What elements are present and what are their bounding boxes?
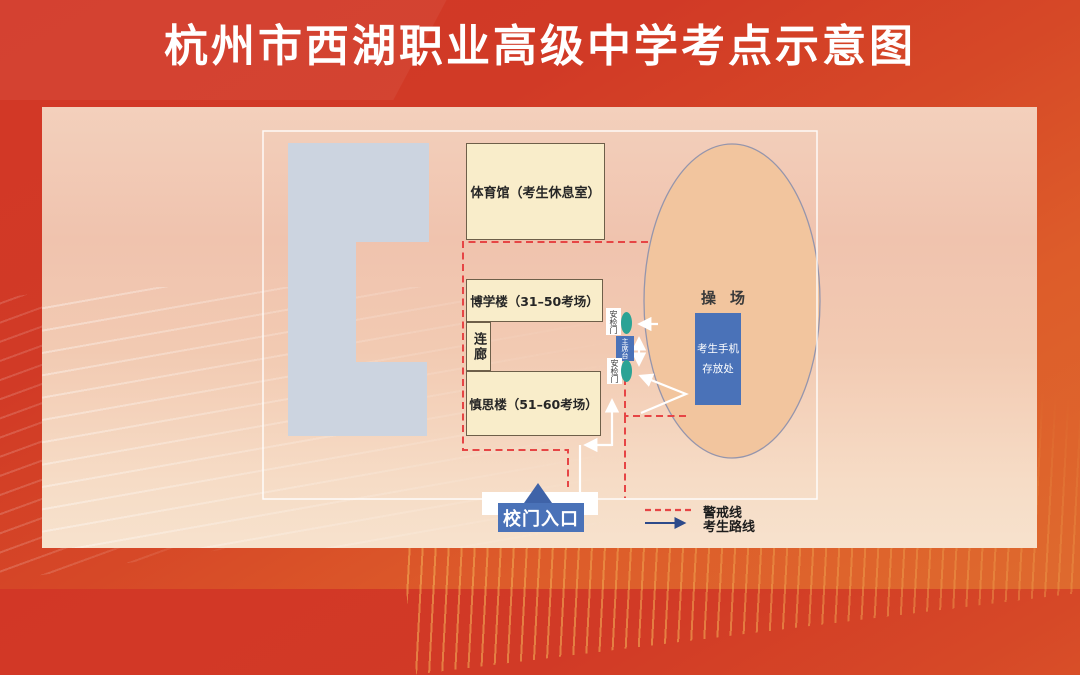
legend-route-label: 考生路线 [703,516,755,535]
security-door-icon [621,360,632,382]
security-door-icon [621,312,632,334]
security-gate-label-lower: 安检门 [607,358,622,384]
school-gate-box: 校门入口 [498,503,584,532]
playground-label: 操场 [660,287,800,308]
phone-storage-line2: 存放处 [702,359,734,379]
security-gate-text: 安检门 [608,310,619,334]
school-gate-label: 校门入口 [503,505,579,531]
phone-storage-box: 考生手机 存放处 [695,313,741,405]
gate-arrow-icon [524,483,552,503]
rostrum-label: 主席台 [620,338,630,359]
security-gate-label-upper: 安检门 [606,308,621,335]
phone-storage-line1: 考生手机 [697,339,739,359]
security-gate-text: 安检门 [609,359,620,383]
